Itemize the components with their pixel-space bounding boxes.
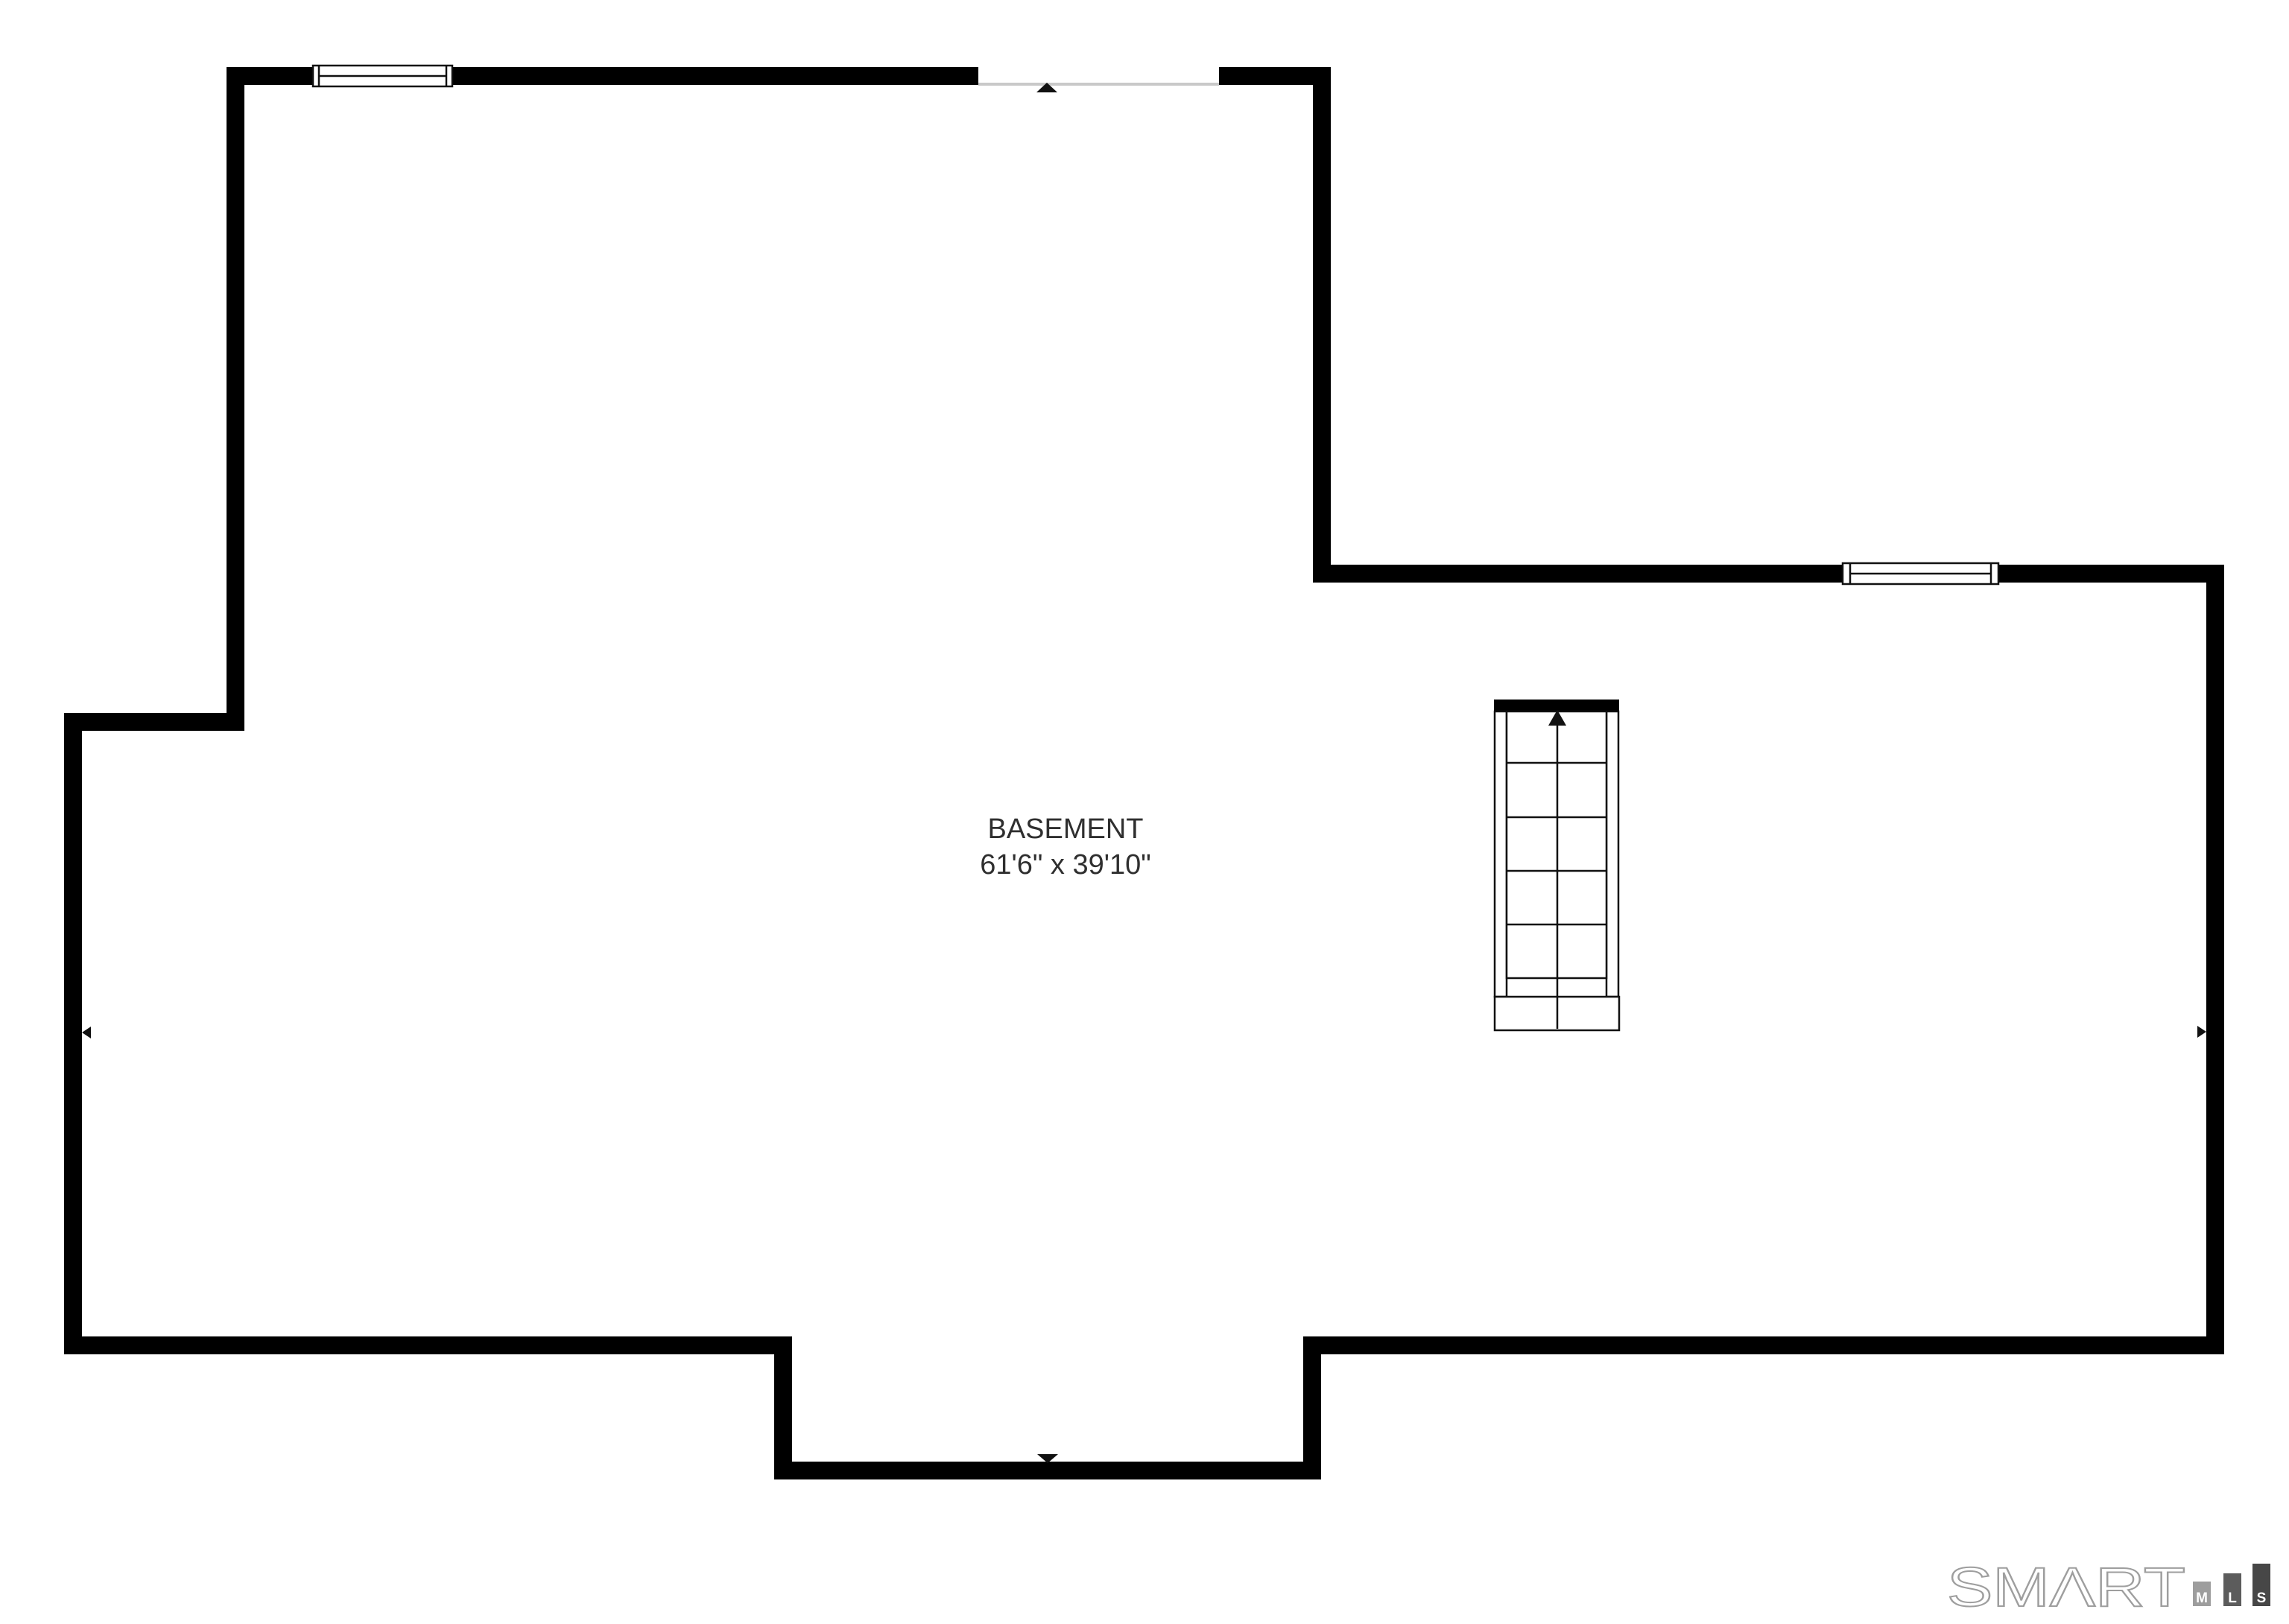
room-label: BASEMENT — [987, 813, 1143, 845]
door-opening-line — [978, 83, 1219, 86]
wall-protrusion-right — [1303, 1336, 1321, 1479]
wall-left-lower — [64, 713, 82, 1354]
door-markers — [82, 83, 2206, 1463]
logo-block-s-letter: S — [2257, 1590, 2267, 1606]
stair-rail-left — [1495, 711, 1507, 997]
logo-brand-text: SMΛRT — [1947, 1556, 2185, 1618]
wall-upper-right — [1313, 565, 2224, 583]
walls — [64, 67, 2224, 1479]
wall-bottom-left — [64, 1336, 792, 1354]
wall-protrusion-left — [774, 1336, 792, 1479]
room-dimensions: 61'6" x 39'10" — [980, 849, 1151, 881]
smartmls-logo: SMΛRT M L S — [1947, 1556, 2270, 1618]
wall-bottom-right — [1303, 1336, 2224, 1354]
floorplan-drawing: BASEMENT 61'6" x 39'10" SMΛRT M L S — [0, 0, 2289, 1624]
window-upper-right-icon — [1843, 563, 1998, 584]
logo-block-m-letter: M — [2196, 1590, 2208, 1606]
wall-top-section-right — [1313, 67, 1331, 583]
wall-protrusion-bottom — [774, 1462, 1321, 1479]
logo-block-l-letter: L — [2228, 1590, 2237, 1606]
window-top-left-icon — [313, 66, 452, 86]
window-symbols — [313, 66, 1998, 584]
door-marker-left-icon — [82, 1027, 91, 1038]
stair-rail-right — [1606, 711, 1618, 997]
staircase-symbol — [1494, 700, 1619, 1030]
wall-right — [2206, 565, 2224, 1354]
floorplan-page: BASEMENT 61'6" x 39'10" SMΛRT M L S — [0, 0, 2289, 1624]
door-marker-right-icon — [2197, 1026, 2206, 1038]
stair-top-bar — [1494, 700, 1619, 711]
wall-left-step — [64, 713, 244, 731]
wall-left-upper — [227, 67, 244, 731]
